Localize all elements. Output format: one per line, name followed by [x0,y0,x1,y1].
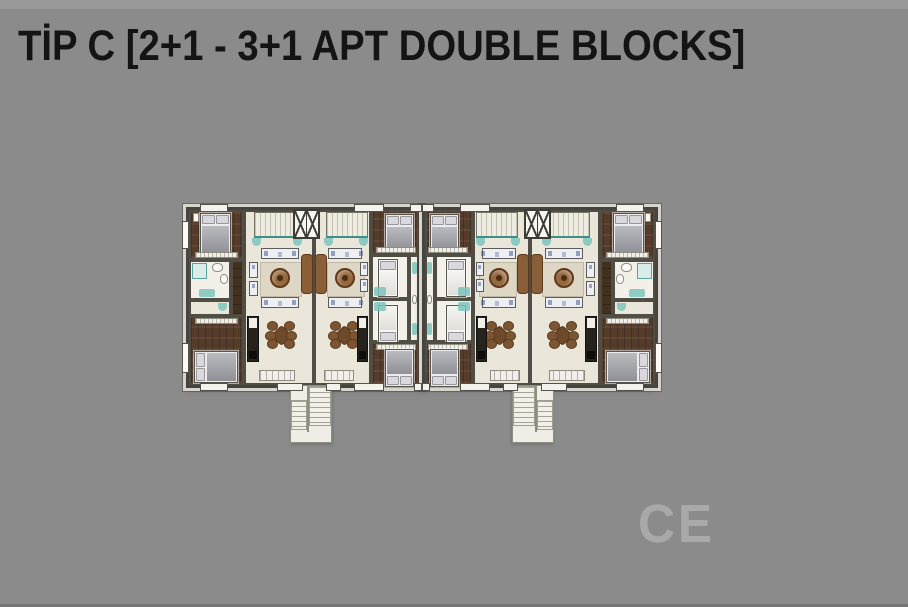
dining-table [329,320,359,350]
kitchen-unit [247,316,259,362]
dining-table [548,320,578,350]
living-room [314,210,371,385]
bedroom [425,210,473,255]
dresser [428,247,468,253]
bathroom [613,260,655,300]
floor-accent [458,302,470,311]
sofa [261,297,299,308]
double-bed [613,213,644,255]
floor-accent [458,287,470,296]
bedroom [189,316,244,385]
armchairs [476,262,484,292]
block-half-left [186,207,422,447]
shaft-x-pane [526,211,538,237]
double-bed [200,213,231,255]
bath-floor-accent [199,289,215,297]
bedroom [600,210,655,260]
shower-accent [427,262,432,274]
kitchen-unit [476,316,487,362]
door-swing [617,303,626,311]
balcony [326,212,368,238]
floor-plan-screenshot: TİP C [2+1 - 3+1 APT DOUBLE BLOCKS] [0,0,908,607]
hallway [189,300,231,316]
sofa [328,297,362,308]
window [354,204,384,212]
bedroom [371,342,419,385]
curtain-accent [252,238,261,246]
dresser [606,318,649,324]
block-outline [422,207,658,388]
shower-accent [412,323,417,335]
coffee-table [489,268,509,288]
window [616,204,644,212]
stair-flight [309,386,331,426]
sofa [482,248,516,259]
page-title: TİP C [2+1 - 3+1 APT DOUBLE BLOCKS] [18,22,745,71]
dresser [195,252,238,258]
shower-accent [412,262,417,274]
bedroom [371,210,419,255]
tv-unit [531,254,543,294]
double-bed [194,351,238,383]
curtain-accent [324,238,333,246]
tv-unit [301,254,313,294]
entrance-door [277,383,303,391]
curtain-accent [359,238,368,246]
door-swing [218,303,227,311]
bath-floor-accent [629,289,645,297]
kitchen-counter [490,370,520,381]
dining-table [266,320,296,350]
floor-accent [374,287,386,296]
sink [412,295,417,304]
dresser [376,247,416,253]
kitchen-unit [357,316,368,362]
stair-flight [537,400,553,430]
coffee-table [335,268,355,288]
kitchen-counter [324,370,354,381]
armchairs [586,262,595,296]
armchairs [360,262,368,292]
elevator-shaft [293,209,320,239]
tv-unit [315,254,327,294]
double-bed [385,349,414,387]
bathroom-strip [425,255,435,342]
sofa [261,248,299,259]
wardrobe-closet [600,260,613,316]
curtain-accent [583,238,592,246]
tv-unit [517,254,529,294]
hallway [613,300,655,316]
stair-flight [291,400,307,430]
bedroom [600,316,655,385]
shower [637,263,652,279]
coffee-table [554,268,574,288]
sofa [545,297,583,308]
window [503,383,518,391]
bedroom-single [435,255,473,299]
sofa [482,297,516,308]
window [460,204,490,212]
curtain-accent [511,238,520,246]
dresser [606,252,649,258]
window [414,383,422,391]
window [616,383,644,391]
curtain-accent [542,238,551,246]
window [655,221,662,249]
window [200,204,228,212]
armchairs [249,262,258,296]
window [326,383,341,391]
floor-plan: CE [186,207,658,447]
window [182,221,189,249]
dining-table [485,320,515,350]
sofa [545,248,583,259]
shower-accent [427,323,432,335]
living-room [473,210,530,385]
floor-accent [374,302,386,311]
toilet [212,263,223,272]
block-half-right [422,207,658,447]
entrance-door [541,383,567,391]
bedroom [189,210,244,260]
elevator-shaft [524,209,551,239]
curtain-accent [476,238,485,246]
window [460,383,490,391]
window [422,204,434,212]
window [422,383,430,391]
bedroom [425,342,473,385]
shaft-x-pane [538,211,549,237]
bedroom-single [371,255,409,299]
balcony [476,212,518,238]
stair-flight [513,386,535,426]
nightstand [645,213,651,222]
toilet [621,263,632,272]
top-edge-strip [0,0,908,9]
bedroom-single [435,299,473,342]
double-bed [606,351,650,383]
bathroom [189,260,231,300]
kitchen-unit [585,316,597,362]
kitchen-counter [549,370,585,381]
window [354,383,384,391]
window [200,383,228,391]
dresser [195,318,238,324]
block-outline [186,207,422,388]
sink [427,295,432,304]
sink [616,274,624,284]
sink [220,274,228,284]
wardrobe-closet [231,260,244,316]
shower [192,263,207,279]
staircase [290,385,332,443]
window [182,343,189,373]
stair-rail [307,386,309,432]
nightstand [193,213,199,222]
watermark: CE [638,493,715,555]
bedroom-single [371,299,409,342]
coffee-table [270,268,290,288]
bathroom-strip [409,255,419,342]
shaft-x-pane [306,211,318,237]
curtain-accent [293,238,302,246]
sofa [328,248,362,259]
window [410,204,422,212]
shaft-x-pane [295,211,306,237]
kitchen-counter [259,370,295,381]
window [655,343,662,373]
double-bed [430,349,459,387]
staircase [512,385,554,443]
